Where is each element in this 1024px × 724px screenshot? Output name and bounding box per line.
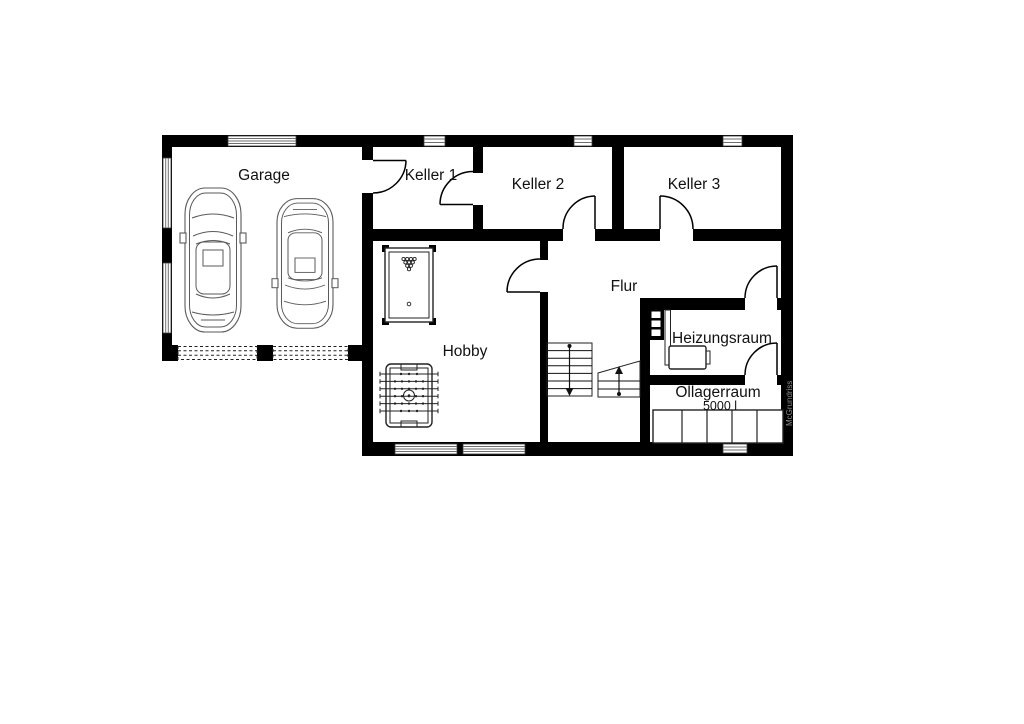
room-label-keller-2: Keller 2 [512,176,565,193]
room-label-keller-1: Keller 1 [405,167,458,184]
wall-keller-row-bottom-a [362,229,563,241]
room-label-hobby: Hobby [443,343,488,360]
wall-garage-hobby-upper [362,147,373,160]
hobby-bottom-window-2 [463,444,525,454]
basement-floorplan: Garage Keller 1 Keller 2 Keller 3 Flur H… [0,0,1024,724]
keller3-top-window [723,136,742,146]
wall-hobby-flur-stub [540,241,548,260]
garage-door-1 [178,347,257,360]
wall-garage-bottom-left [162,345,178,361]
wall-garage-bottom-mid [257,345,273,361]
room-label-heizungsraum: Heizungsraum [672,330,772,347]
keller2-top-window [574,136,592,146]
wall-heizung-oel-stub [777,375,781,385]
wall-keller1-keller2-upper [473,147,483,173]
oeltank-vent [723,444,747,453]
garage-door-2 [273,347,348,360]
wall-keller-row-bottom-b [595,229,660,241]
garage-top-window [228,136,296,146]
oil-capacity-label: 5000 l [703,399,737,413]
garage-left-window-2 [163,263,171,333]
wall-keller-row-bottom-c [693,229,781,241]
watermark-text: McGrundriss [785,381,794,426]
oil-tanks [653,410,783,443]
wall-garage-bottom-right [348,345,362,361]
background [0,0,1024,724]
hobby-bottom-window-1 [395,444,457,454]
wall-keller2-keller3 [612,147,624,229]
billiard-table [382,245,436,325]
wall-keller1-keller2-lower [473,205,483,229]
car-1 [180,188,246,332]
wall-heizungsraum-top-stub [777,298,781,310]
room-label-flur: Flur [611,278,638,295]
foosball-table [380,364,438,427]
car-2 [272,199,338,329]
boiler [669,346,710,369]
floorplan-page: Garage Keller 1 Keller 2 Keller 3 Flur H… [0,0,1024,724]
keller1-top-window [424,136,445,146]
garage-left-window-1 [163,158,171,228]
room-label-keller-3: Keller 3 [668,176,721,193]
room-label-garage: Garage [238,167,290,184]
